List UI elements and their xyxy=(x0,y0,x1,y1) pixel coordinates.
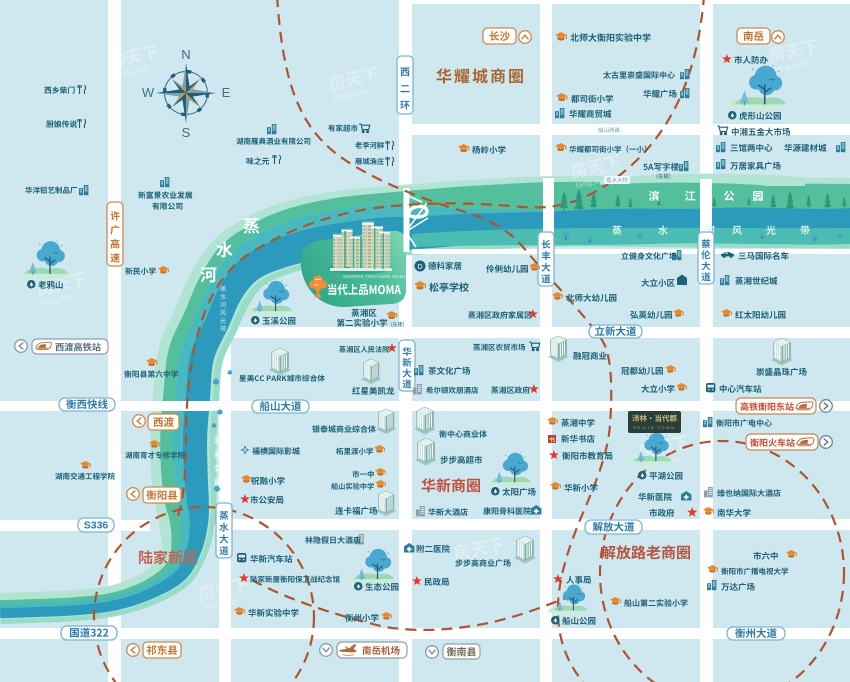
svg-text:PEILIN TOWN: PEILIN TOWN xyxy=(633,425,675,430)
svg-text:D: D xyxy=(417,264,422,271)
svg-text:S: S xyxy=(182,125,191,140)
svg-text:E: E xyxy=(222,85,231,100)
svg-text:W: W xyxy=(142,85,155,100)
svg-text:S336: S336 xyxy=(84,520,109,532)
svg-text:N: N xyxy=(181,47,190,62)
svg-text:MODERN TREASURE MOMA: MODERN TREASURE MOMA xyxy=(343,274,406,279)
